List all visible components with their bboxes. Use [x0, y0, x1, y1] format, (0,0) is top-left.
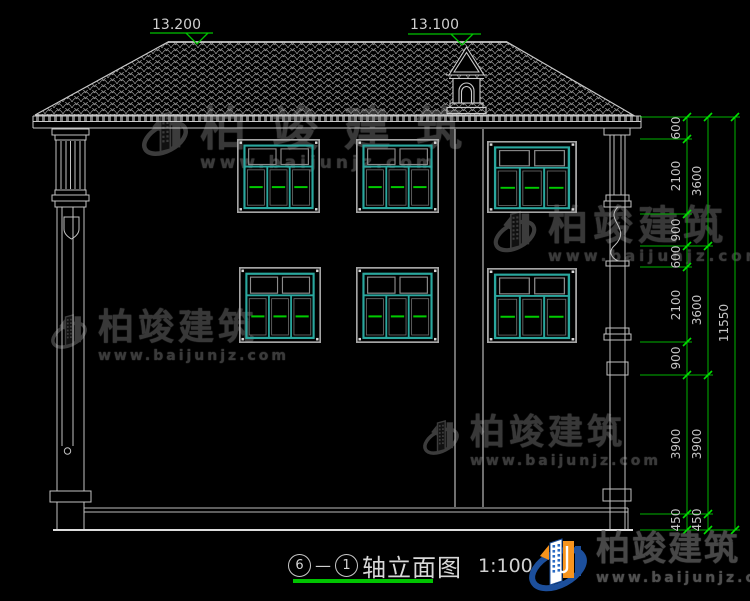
plinth [84, 508, 628, 530]
title-underline [293, 579, 433, 583]
right-column [603, 128, 631, 529]
wall-joint-lines [455, 129, 483, 507]
brand-url: www.baijunjz.com [596, 570, 750, 586]
dim-label: 2100 [669, 290, 683, 321]
roof [35, 42, 633, 115]
window-upper-3 [488, 142, 576, 212]
dimension-labels-overall: 11550 [717, 304, 731, 342]
brand-text: 柏竣建筑 www.baijunjz.com [596, 532, 750, 586]
window-lower-1 [240, 268, 320, 342]
column-shield-ornament [64, 217, 79, 239]
axis-bubble-end: 1 [335, 554, 358, 577]
dimension-labels-middle: 3600 3600 3900 450 [690, 166, 704, 532]
dim-label: 600 [669, 117, 683, 140]
axis-bubble-start: 6 [288, 554, 311, 577]
level-label: 13.200 [152, 17, 201, 33]
elevation-drawing: 13.200 13.100 [0, 0, 750, 601]
window-lower-3 [488, 269, 576, 342]
brand-logo-icon [526, 532, 590, 594]
drawing-title: 6 — 1 轴立面图 1:100 [288, 548, 533, 583]
axis-dash: — [315, 556, 331, 575]
roof-tiles [35, 42, 633, 115]
dim-label: 900 [669, 219, 683, 242]
dim-label: 600 [669, 246, 683, 269]
title-text: 轴立面图 [362, 548, 462, 583]
dim-label: 3600 [690, 166, 704, 197]
window-lower-2 [357, 268, 438, 342]
brand-name: 柏竣建筑 [596, 532, 750, 566]
elevation-sheet: 柏竣建筑 www.baijunjz.com 柏竣建筑 www.baijunjz.… [0, 0, 750, 601]
window-upper-2 [357, 140, 438, 212]
window-upper-1 [238, 140, 319, 212]
dim-label: 3600 [690, 295, 704, 326]
left-column [50, 129, 91, 529]
dim-label: 3900 [669, 429, 683, 460]
eave-dentils [33, 116, 641, 121]
level-label: 13.100 [410, 17, 459, 33]
column-scroll-ornament [611, 207, 621, 261]
dimension-labels-inner: 600 2100 900 600 2100 900 3900 450 [669, 117, 683, 532]
level-marker-ridge: 13.200 [150, 17, 213, 44]
title-scale: 1:100 [478, 555, 533, 577]
dim-label: 2100 [669, 161, 683, 192]
level-marker-cupola: 13.100 [408, 17, 481, 45]
dim-label: 3900 [690, 429, 704, 460]
eave-cornice [33, 116, 641, 128]
dim-label: 11550 [717, 304, 731, 342]
dim-label: 900 [669, 347, 683, 370]
brand-logo-block: 柏竣建筑 www.baijunjz.com [526, 532, 750, 594]
